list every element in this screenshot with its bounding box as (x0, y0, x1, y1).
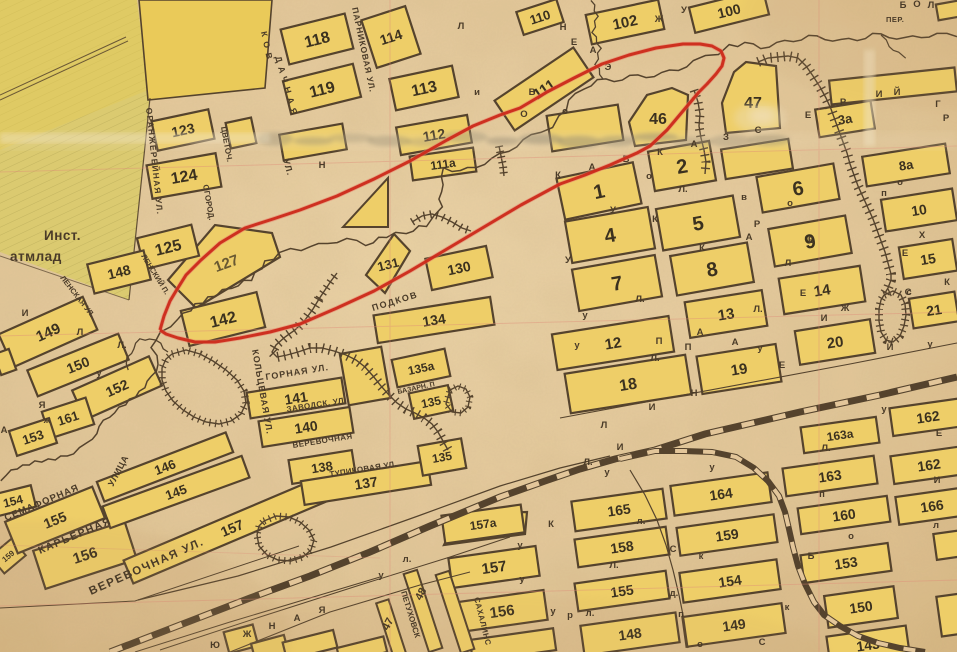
svg-text:л.: л. (637, 516, 646, 527)
svg-text:с: с (906, 287, 911, 298)
svg-text:Е: Е (902, 248, 908, 259)
svg-text:Ж: Ж (840, 303, 850, 314)
svg-text:ж: ж (43, 415, 51, 426)
svg-text:п: п (881, 188, 887, 199)
svg-text:Е: Е (808, 235, 814, 246)
svg-text:Инст.: Инст. (44, 228, 81, 243)
svg-text:у: у (757, 343, 763, 354)
svg-text:Г: Г (935, 99, 941, 110)
svg-text:К: К (657, 147, 663, 158)
svg-text:ПЕР.: ПЕР. (886, 15, 904, 24)
svg-text:Х: Х (919, 230, 926, 241)
svg-text:Р: Р (754, 219, 761, 230)
svg-text:К: К (699, 243, 705, 254)
svg-text:А: А (732, 337, 739, 348)
svg-text:атмлад: атмлад (10, 249, 62, 264)
svg-text:о: о (646, 171, 652, 182)
svg-text:Н: Н (319, 160, 326, 171)
svg-text:у: у (604, 467, 610, 478)
svg-text:П: П (656, 336, 663, 347)
svg-text:Л: Л (785, 258, 792, 269)
svg-text:К: К (652, 214, 658, 225)
svg-text:у: у (881, 404, 887, 415)
svg-text:п: п (819, 489, 825, 500)
svg-text:С: С (759, 637, 766, 648)
svg-text:Р: Р (943, 113, 950, 124)
svg-text:П: П (685, 342, 692, 353)
svg-text:Б: Б (808, 551, 815, 562)
svg-text:Л.: Л. (753, 304, 762, 315)
svg-text:л.: л. (403, 554, 412, 565)
svg-text:Р: Р (840, 97, 847, 108)
svg-text:У: У (610, 205, 616, 216)
svg-text:Я: Я (39, 400, 46, 411)
svg-text:Л.: Л. (650, 353, 659, 364)
svg-text:л.: л. (586, 608, 595, 619)
svg-text:у: у (550, 606, 556, 617)
svg-text:Й: Й (894, 86, 901, 98)
svg-text:Я: Я (319, 605, 326, 616)
svg-text:у: у (709, 462, 715, 473)
svg-text:Л.: Л. (821, 443, 830, 454)
svg-text:А: А (697, 327, 704, 338)
svg-text:о: о (848, 531, 854, 542)
svg-text:С: С (670, 544, 677, 555)
svg-text:К: К (555, 170, 561, 181)
svg-text:Ж: Ж (654, 14, 664, 25)
svg-text:З: З (723, 132, 729, 143)
svg-text:А: А (590, 45, 597, 56)
svg-text:у: у (927, 339, 933, 350)
svg-text:л: л (933, 520, 939, 531)
svg-text:к: к (785, 602, 790, 613)
svg-text:У: У (681, 5, 687, 16)
svg-text:д.: д. (670, 588, 679, 599)
svg-text:О: О (520, 109, 527, 120)
svg-text:Л.: Л. (678, 184, 687, 195)
svg-text:у: у (519, 574, 525, 585)
svg-text:Л: Л (601, 420, 608, 431)
svg-text:о: о (562, 106, 568, 117)
svg-text:у: у (378, 570, 384, 581)
svg-text:Е: Е (936, 428, 942, 439)
svg-text:И: И (22, 308, 29, 319)
svg-text:Е: Е (800, 288, 806, 299)
svg-text:К: К (548, 519, 554, 530)
svg-text:И: И (821, 313, 828, 324)
svg-text:А: А (294, 613, 301, 624)
svg-text:в: в (741, 192, 747, 203)
svg-text:Л.: Л. (635, 294, 644, 305)
svg-text:Е: Е (779, 360, 785, 371)
svg-text:Л: Л (77, 327, 84, 338)
svg-text:у: у (582, 310, 588, 321)
svg-text:С: С (755, 125, 762, 136)
svg-text:К: К (944, 277, 950, 288)
svg-text:Л: Л (458, 21, 465, 32)
svg-text:Л.: Л. (609, 560, 618, 571)
svg-text:А: А (1, 425, 8, 436)
svg-text:И: И (649, 402, 656, 413)
svg-text:Б: Б (900, 0, 907, 11)
svg-text:п: п (678, 609, 684, 620)
svg-text:Н: Н (560, 22, 567, 33)
svg-text:у: у (517, 540, 523, 551)
svg-text:Ю: Ю (210, 640, 220, 651)
svg-text:Ж: Ж (242, 629, 252, 640)
svg-text:Н: Н (269, 621, 276, 632)
svg-text:к: к (699, 551, 704, 562)
svg-text:Н: Н (691, 388, 698, 399)
svg-text:В: В (529, 87, 536, 98)
svg-text:И: И (934, 475, 941, 486)
svg-text:Л.: Л. (117, 340, 126, 351)
svg-text:р: р (567, 610, 573, 621)
svg-text:у: у (96, 368, 102, 379)
svg-text:А: А (746, 232, 753, 243)
svg-text:у: у (574, 340, 580, 351)
svg-text:А: А (691, 139, 698, 150)
svg-text:Й: Й (887, 341, 894, 353)
svg-text:Е: Е (805, 110, 811, 121)
svg-text:Е: Е (571, 37, 577, 48)
svg-text:И: И (876, 89, 883, 100)
svg-text:о: о (897, 177, 903, 188)
svg-text:У: У (565, 255, 571, 266)
svg-text:и: и (474, 87, 480, 98)
svg-text:о: о (697, 639, 703, 650)
svg-text:И: И (617, 442, 624, 453)
svg-text:О: О (913, 0, 920, 10)
svg-text:Л: Л (928, 0, 935, 11)
svg-text:о: о (787, 198, 793, 209)
svg-text:Л.: Л. (583, 457, 592, 468)
